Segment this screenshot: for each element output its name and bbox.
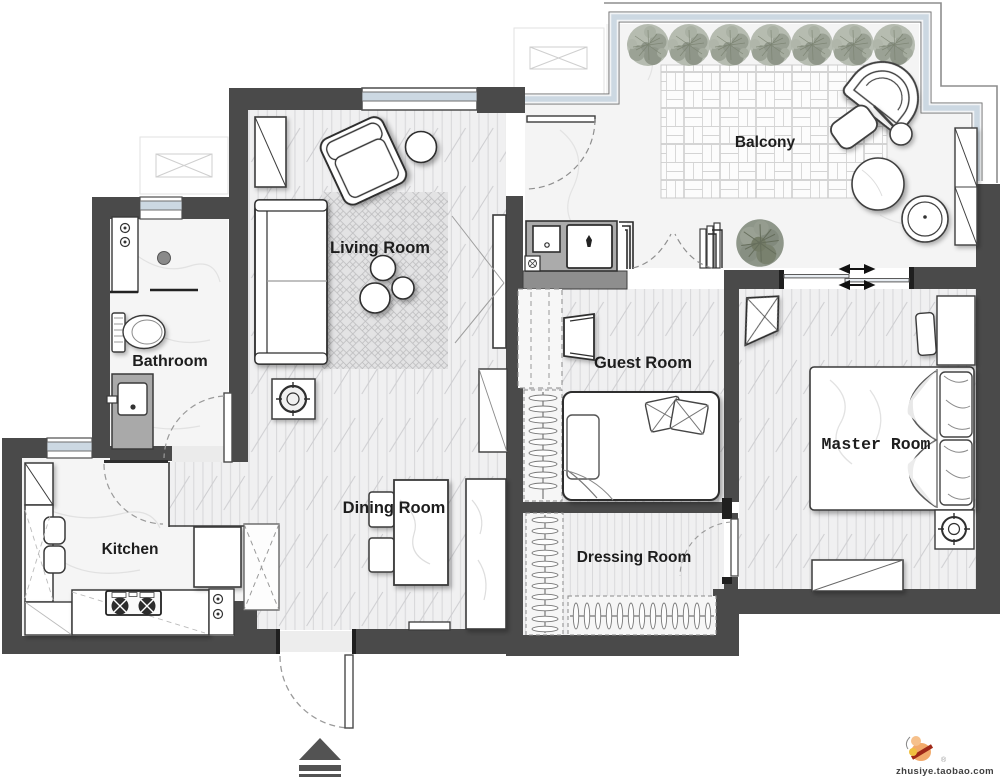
svg-text:Kitchen: Kitchen [102, 541, 159, 558]
svg-text:Master Room: Master Room [822, 435, 931, 454]
svg-text:Living Room: Living Room [330, 239, 430, 257]
svg-text:zhusiye.taobao.com: zhusiye.taobao.com [896, 766, 994, 777]
svg-text:Balcony: Balcony [735, 134, 796, 151]
svg-text:Guest Room: Guest Room [594, 354, 692, 372]
svg-text:Dining Room: Dining Room [343, 499, 446, 517]
svg-text:®: ® [941, 756, 947, 764]
svg-text:Bathroom: Bathroom [132, 353, 208, 370]
svg-text:Dressing Room: Dressing Room [577, 549, 692, 566]
